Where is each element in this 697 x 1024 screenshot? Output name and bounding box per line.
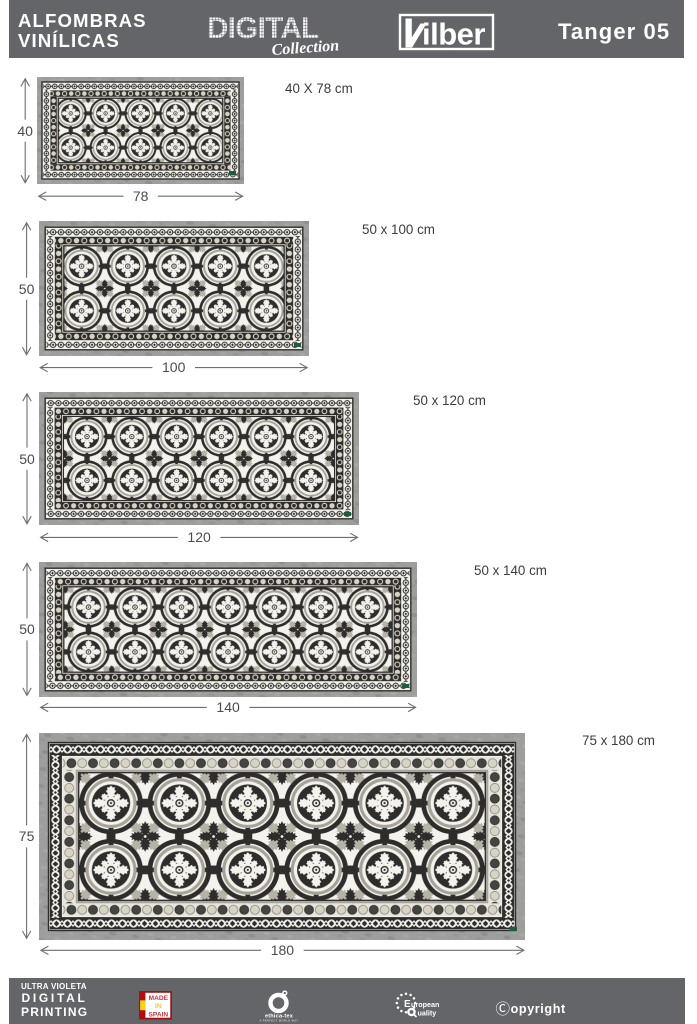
svg-text:A PERFECT WORLD WAY: A PERFECT WORLD WAY [260,1019,299,1023]
svg-text:IN: IN [155,1002,162,1009]
svg-text:MADE: MADE [149,994,169,1001]
svg-text:uality: uality [418,1009,437,1018]
svg-text:SPAIN: SPAIN [149,1011,169,1018]
